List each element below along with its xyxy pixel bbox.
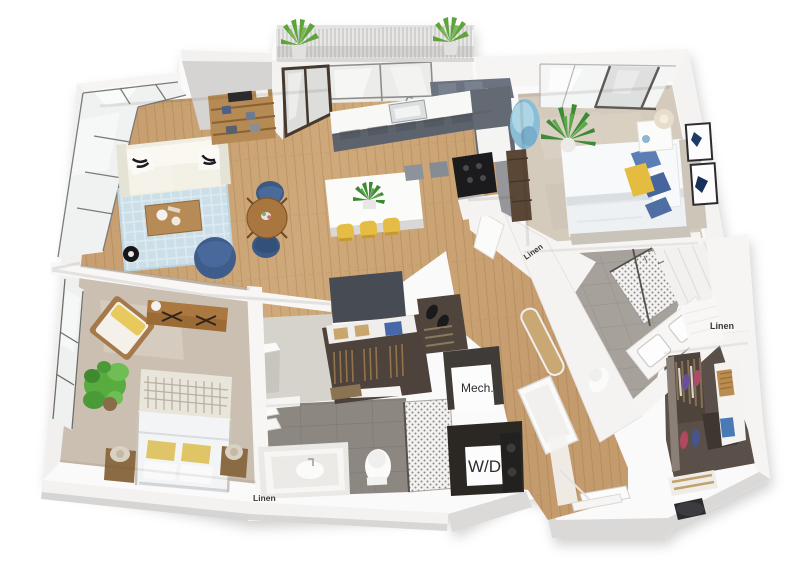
svg-text:Mech.: Mech.: [461, 381, 494, 395]
svg-text:W/D: W/D: [468, 457, 501, 476]
svg-text:Linen: Linen: [253, 493, 276, 503]
svg-text:Linen: Linen: [710, 321, 734, 331]
